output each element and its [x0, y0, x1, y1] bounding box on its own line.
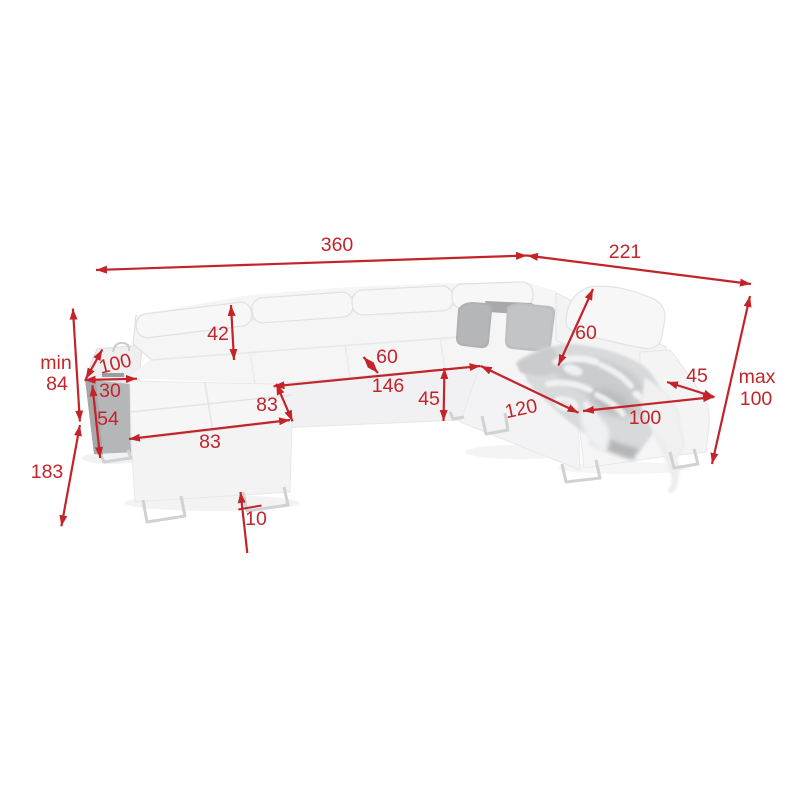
svg-text:54: 54	[97, 408, 119, 430]
svg-text:84: 84	[46, 373, 68, 395]
svg-text:60: 60	[376, 346, 398, 368]
svg-text:221: 221	[609, 241, 642, 263]
svg-text:100: 100	[629, 407, 662, 429]
svg-text:30: 30	[99, 380, 121, 402]
svg-text:60: 60	[575, 322, 597, 344]
svg-text:83: 83	[199, 431, 221, 453]
svg-text:183: 183	[31, 461, 64, 483]
svg-text:146: 146	[372, 375, 405, 397]
svg-text:45: 45	[418, 388, 440, 410]
svg-text:100: 100	[740, 388, 773, 410]
svg-text:360: 360	[321, 234, 354, 256]
svg-text:min: min	[40, 352, 71, 374]
svg-text:45: 45	[686, 365, 708, 387]
svg-text:42: 42	[207, 323, 229, 345]
svg-text:max: max	[739, 366, 776, 388]
svg-text:10: 10	[245, 508, 267, 530]
svg-text:83: 83	[256, 394, 278, 416]
